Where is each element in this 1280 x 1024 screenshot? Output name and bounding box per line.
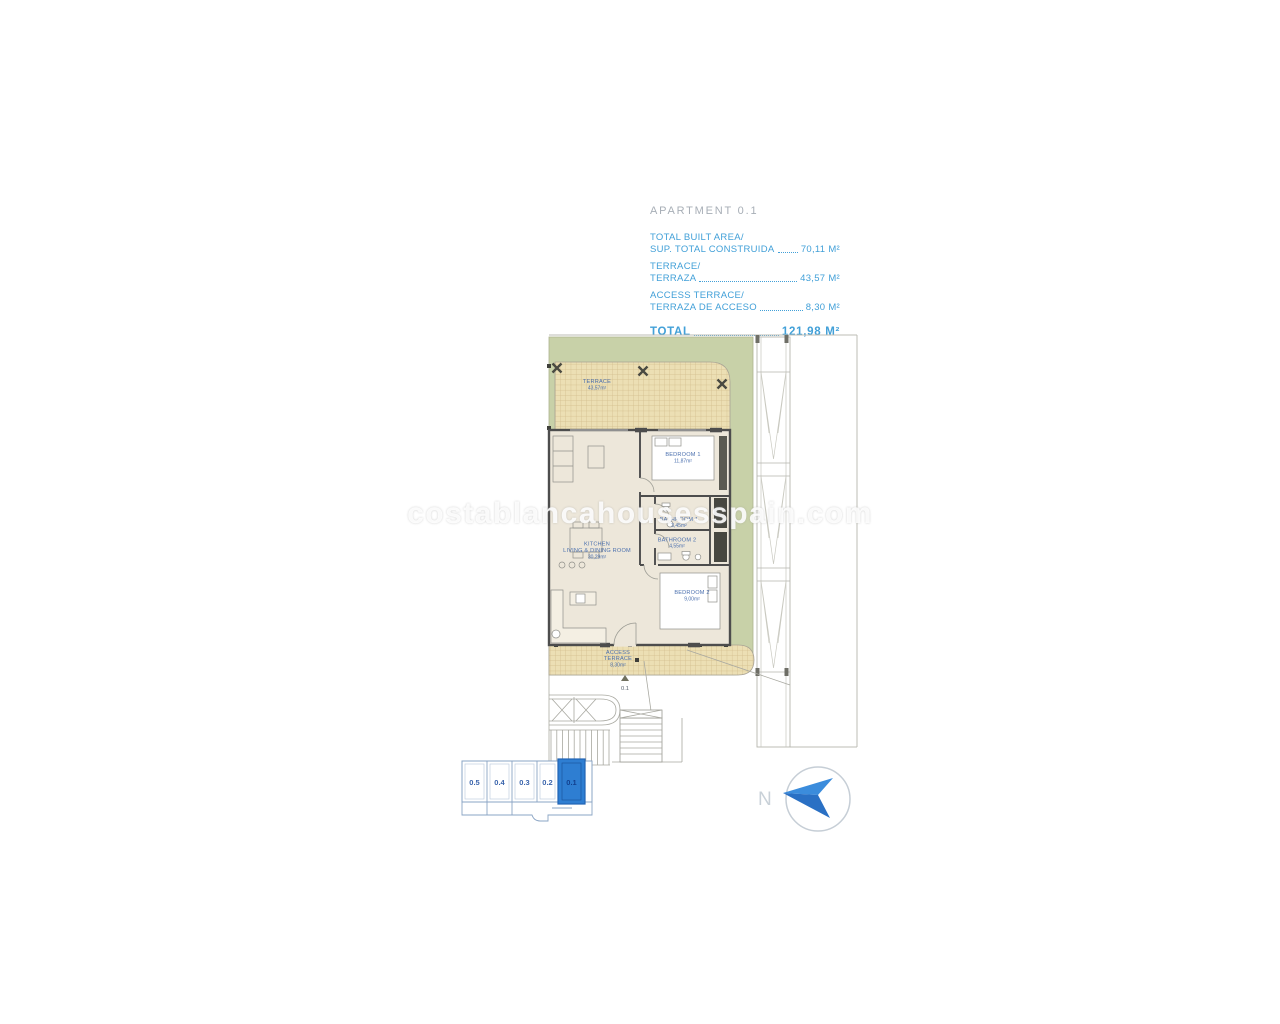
area-row-terrace: TERRACE/ TERRAZA 43,57 M² [650, 261, 840, 284]
kitchen-label-2: LIVING & DINING ROOM [563, 548, 631, 554]
access-terrace-label-2: TERRACE [604, 656, 632, 662]
stair [620, 710, 662, 762]
apartment-title: APARTMENT 0.1 [650, 205, 840, 217]
area-value: 8,30 M² [806, 302, 840, 314]
unit-label: 0.2 [542, 778, 552, 787]
bedroom2-area-label: 9,00m² [684, 597, 700, 603]
dotted-leader [699, 281, 797, 282]
access-terrace-area [549, 645, 754, 675]
unit-label: 0.5 [469, 778, 479, 787]
bathroom2-area-label: 4,55m² [669, 544, 685, 550]
keyplan-unit-0-1-selected[interactable]: 0.1 [558, 759, 585, 804]
planter [549, 695, 620, 725]
unit-label: 0.4 [494, 778, 505, 787]
terrace-label: TERRACE [583, 379, 611, 385]
floor-plan: 0.1 TERRACE 43,57m² BEDROOM 1 11,87m² BA… [540, 328, 870, 778]
north-arrow-upper [783, 778, 833, 795]
bathroom1-area-label: 3,45m² [671, 523, 687, 529]
bedroom1-label: BEDROOM 1 [665, 452, 700, 458]
keyplan-unit-0-5[interactable]: 0.5 [469, 778, 479, 787]
keyplan-unit-0-4[interactable]: 0.4 [494, 778, 505, 787]
dotted-leader [778, 252, 798, 253]
area-row-access-terrace: ACCESS TERRACE/ TERRAZA DE ACCESO 8,30 M… [650, 290, 840, 313]
access-terrace-area-label: 8,30m² [610, 663, 626, 669]
keyplan-unit-0-2[interactable]: 0.2 [542, 778, 552, 787]
area-label-es: TERRAZA DE ACCESO [650, 302, 757, 314]
area-value: 43,57 M² [800, 273, 840, 285]
apartment-header: APARTMENT 0.1 TOTAL BUILT AREA/ SUP. TOT… [650, 205, 840, 338]
keyplan-unit-0-3[interactable]: 0.3 [519, 778, 529, 787]
area-label-es: TERRAZA [650, 273, 696, 285]
unit-label: 0.1 [566, 778, 576, 787]
area-value: 70,11 M² [801, 244, 840, 256]
sink [552, 630, 560, 638]
north-label: N [758, 789, 772, 810]
area-label-en: ACCESS TERRACE/ [650, 290, 840, 302]
keyplan-lower-band [462, 802, 592, 821]
page: APARTMENT 0.1 TOTAL BUILT AREA/ SUP. TOT… [0, 0, 1280, 1024]
entrance-marker: 0.1 [621, 675, 629, 692]
terrace-area-label: 43,57m² [588, 386, 607, 392]
north-arrow: N [750, 755, 860, 845]
area-label-en: TERRACE/ [650, 261, 840, 273]
dotted-leader [760, 310, 803, 311]
building-key-plan: 0.5 0.4 0.3 0.2 0.1 [456, 757, 601, 849]
bedroom1-area-label: 11,87m² [674, 459, 692, 465]
area-label-en: TOTAL BUILT AREA/ [650, 232, 840, 244]
unit-label: 0.3 [519, 778, 529, 787]
area-label-es: SUP. TOTAL CONSTRUIDA [650, 244, 775, 256]
entrance-label: 0.1 [621, 686, 629, 692]
bedroom2-label: BEDROOM 2 [674, 590, 709, 596]
walkway-strip [756, 335, 791, 747]
area-row-built: TOTAL BUILT AREA/ SUP. TOTAL CONSTRUIDA … [650, 232, 840, 255]
kitchen-area-label: 30,29m² [588, 555, 607, 561]
kitchen-label-1: KITCHEN [584, 542, 610, 548]
